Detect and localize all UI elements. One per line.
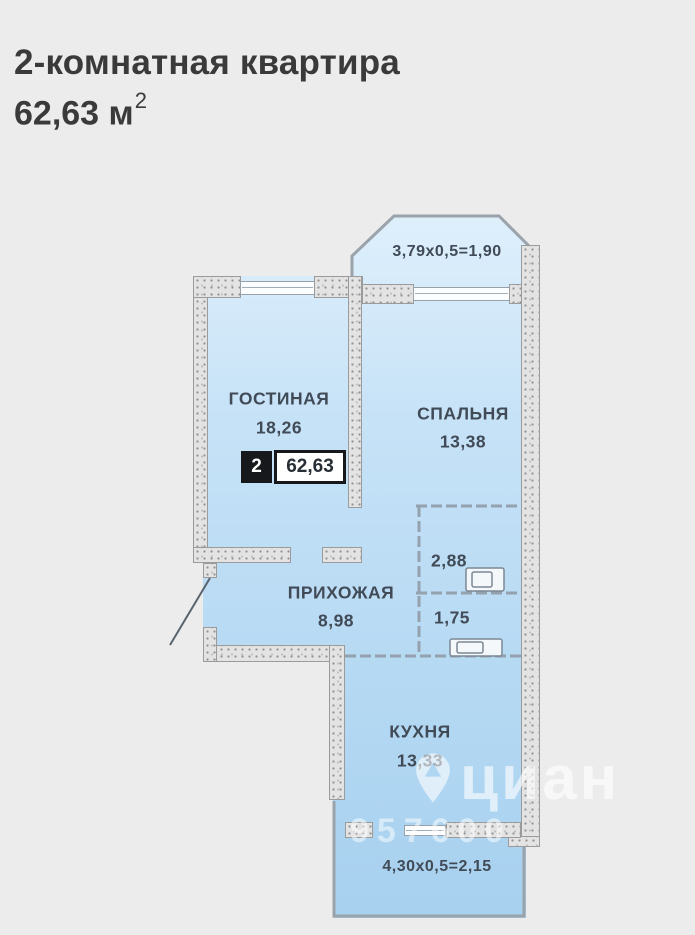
bedroom-area: 13,38 (440, 432, 486, 453)
wall-living-bedroom (348, 276, 362, 508)
cian-pin-icon (412, 751, 454, 807)
wall-living-bottom-left (193, 547, 291, 563)
balcony-top-dimension: 3,79x0,5=1,90 (392, 243, 501, 261)
living-room-area: 18,26 (256, 418, 302, 439)
wall-living-bottom-corner (322, 547, 362, 563)
cian-brand-text: циан (460, 748, 620, 810)
wall-hall-bottom (203, 645, 345, 662)
wall-entry-lower-stub (203, 627, 217, 662)
balcony-bottom-dimension: 4,30x0,5=2,15 (382, 858, 491, 876)
hallway-area: 8,98 (318, 611, 354, 632)
kitchen-label: КУХНЯ (389, 722, 450, 743)
cian-watermark: циан 957600 (412, 748, 695, 851)
total-area-badge: 62,63 (274, 450, 346, 484)
bathroom-area: 2,88 (431, 551, 467, 572)
rooms-count-badge: 2 (241, 451, 272, 483)
bedroom-label: СПАЛЬНЯ (417, 404, 509, 425)
wall-living-top-left-pier (193, 276, 241, 298)
hallway-label: ПРИХОЖАЯ (288, 583, 394, 604)
watermark-phone-text: 957600 (350, 812, 695, 851)
wc-area: 1,75 (434, 608, 470, 629)
living-room-window (240, 281, 315, 295)
wall-kitchen-left (329, 645, 345, 800)
wall-left-outer (193, 276, 208, 563)
wall-entry-upper-stub (203, 563, 217, 578)
bedroom-window (413, 287, 510, 301)
living-room-label: ГОСТИНАЯ (229, 389, 330, 410)
wall-bedroom-top-left-pier (362, 284, 414, 304)
